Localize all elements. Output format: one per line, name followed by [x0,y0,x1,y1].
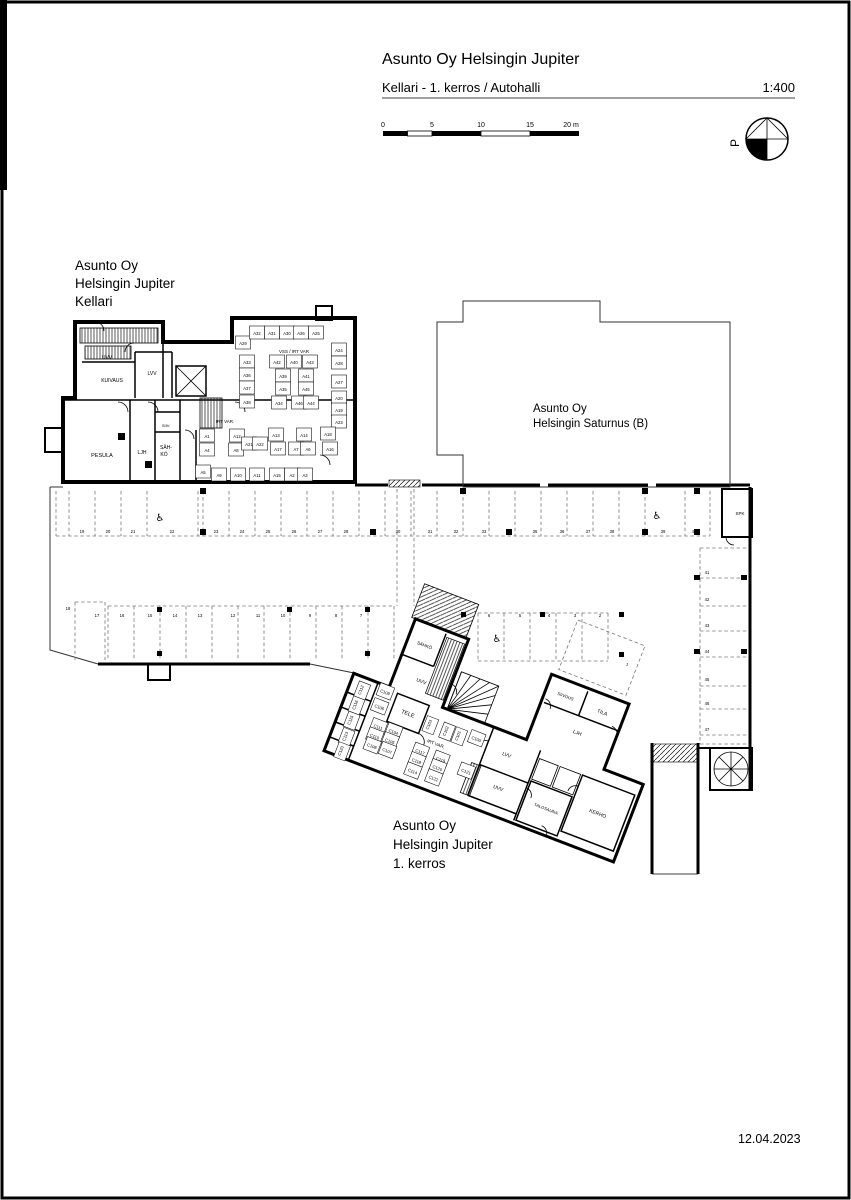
parking-stall-38: 38 [610,529,615,534]
label-a31: A31 [268,331,276,336]
label-a41: A41 [302,374,310,379]
parking-stall-2: 2 [599,613,602,618]
parking-stall-34: 34 [507,529,512,534]
parking-stall-23: 23 [214,529,219,534]
label-a5: A5 [200,470,206,475]
parking-stall-lines-row2 [75,602,394,660]
room-label-ljh-kellari: LJH [138,450,147,456]
title-block: Asunto Oy Helsingin Jupiter Kellari - 1.… [382,51,795,98]
label-a36: A36 [243,373,251,378]
kellari-label: Asunto OyHelsingin JupiterKellari [75,258,175,309]
label-a6: A6 [305,447,311,452]
parking-stall-13: 13 [198,613,203,618]
exit-ramp [652,743,710,874]
parking-stall-14: 14 [173,613,178,618]
room-label-spk: SPK [735,511,744,516]
parking-stall-4: 4 [548,613,551,618]
scale-tick-20-m: 20 m [563,122,579,129]
parking-stall-31: 31 [428,529,433,534]
room-label-sahko-1krs: SÄHKÖ [416,639,433,650]
parking-stall-11: 11 [256,613,261,618]
ramp-hatch [653,744,698,762]
kellari-west-box [45,428,63,452]
room-label-tele: TELE [400,709,415,720]
scale-bar: 05101520 m [381,122,579,136]
label-a38: A38 [243,400,251,405]
kerros1-label: Asunto OyHelsingin Jupiter1. kerros [393,818,493,871]
scale-tick-15: 15 [526,122,534,129]
binding-mark [0,0,7,190]
parking-stall-32: 32 [454,529,459,534]
drawing-sheet: Asunto Oy Helsingin Jupiter Kellari - 1.… [0,0,851,1200]
parking-stall-12: 12 [231,613,236,618]
parking-stall-45: 45 [705,677,710,682]
room-label-kuivaus: KUIVAUS [101,378,123,384]
label-a33: A33 [243,360,251,365]
parking-stall-16: 16 [120,613,125,618]
parking-stall-7: 7 [360,613,363,618]
parking-stall-10: 10 [281,613,286,618]
label-a18: A18 [324,432,332,437]
label-a23: A23 [335,420,343,425]
parking-stall-39: 39 [661,529,666,534]
scale-tick-5: 5 [430,122,434,129]
label-a3: A3 [302,473,308,478]
parking-stall-9: 9 [309,613,312,618]
parking-stall-8: 8 [335,613,338,618]
parking-stall-33: 33 [482,529,487,534]
parking-stall-18: 18 [66,606,71,611]
room-label-tila: TILA [596,708,609,718]
parking-stall-22: 22 [170,529,175,534]
label-a19: A19 [335,408,343,413]
building-labels: 1SÄHKÖUVVTELEIRT VAR.LVVUVVTALOSAUNAKERH… [331,574,661,855]
label-a13: A13 [272,433,280,438]
label-a44: A44 [307,401,315,406]
drawing-date: 12.04.2023 [738,1132,801,1146]
parking-stall-27: 27 [318,529,323,534]
spiral-staircase [710,748,752,790]
room-label-uvv-kellari: UVV [102,355,113,361]
saturnus-label: Asunto OyHelsingin Saturnus (B) [533,403,648,430]
parking-stall-41: 41 [705,570,710,575]
parking-stall-43: 43 [705,623,710,628]
parking-stall-28: 28 [344,529,349,534]
label-a46: A46 [295,401,303,406]
wheelchair-icon: ♿ [156,513,165,524]
room-label-sahko-line2: KÖ [160,451,167,458]
room-label-lvv-1krs: LVV [501,751,512,760]
elevator-cross [176,366,206,396]
label-a37: A37 [243,386,251,391]
parking-stall-24: 24 [240,529,245,534]
parking-stall-42: 42 [705,597,710,602]
parking-stall-26: 26 [292,529,297,534]
label-a39: A39 [279,374,287,379]
label-a10: A10 [234,473,242,478]
parking-garage [50,480,752,874]
parking-stall-30: 30 [396,529,401,534]
page-labels: UVVKUIVAUSLVVPESULALJHSÄH-KÖSIIV.IRT VAR… [66,258,745,871]
drawing-subtitle: Kellari - 1. kerros / Autohalli [382,80,540,95]
wheelchair-icon: ♿ [493,634,502,645]
label-a16: A16 [326,447,334,452]
parking-stall-29: 29 [370,529,375,534]
floor-plan-svg: Asunto Oy Helsingin Jupiter Kellari - 1.… [0,0,851,1200]
parking-stall-lines-east [700,548,747,744]
parking-stall-46: 46 [705,701,710,706]
parking-stall-20: 20 [106,529,111,534]
parking-stall-47: 47 [705,727,710,732]
label-a21: A21 [245,442,253,447]
room-label-vss-irtvar: VSS / IRT VAR [279,349,310,354]
scale-tick-0: 0 [381,122,385,129]
room-label-pesula: PESULA [91,453,113,459]
room-label-lvv-kellari: LVV [147,371,157,377]
saturnus-building-outline [437,301,730,487]
parking-stall-25: 25 [266,529,271,534]
label-a15: A15 [273,473,281,478]
parking-stall-37: 37 [586,529,591,534]
parking-stall-40: 40 [692,529,697,534]
parking-stall-1-box [559,620,645,695]
parking-stall-36: 36 [560,529,565,534]
north-label: P [728,139,742,147]
label-a40: A40 [290,360,298,365]
label-a1: A1 [204,434,210,439]
room-label-kerho: KERHO [588,808,607,820]
label-a32: A32 [253,331,261,336]
parking-stall-44: 44 [705,649,710,654]
driveway-lane-lines [397,489,414,606]
spk-door-arc [726,537,734,545]
label-a7: A7 [293,447,299,452]
room-label-talosauna: TALOSAUNA [533,802,558,816]
room-label-siiv: SIIV. [162,423,170,428]
compass-north-wedge [746,139,767,160]
label-a35: A35 [279,387,287,392]
label-a22: A22 [256,442,264,447]
parking-stall-19: 19 [80,529,85,534]
drying-rack-hatch [80,328,158,343]
door-tags [118,433,152,468]
north-arrow: P [728,118,788,160]
room-label-sahko-line1: SÄH- [160,444,172,451]
room-label-ljh-1krs: LJH [572,729,583,738]
label-a12: A12 [233,434,241,439]
parking-stall-35: 35 [533,529,538,534]
parking-stall-3: 3 [574,613,577,618]
garage-west-boundary [50,487,98,664]
room-label-uvv-1krs: UVV [415,677,427,687]
parking-stall-1: 1 [625,661,630,667]
scale-tick-10: 10 [477,122,485,129]
label-a4: A4 [204,448,210,453]
label-a17: A17 [274,447,282,452]
label-a25: A25 [312,331,320,336]
room-label-irtvar-kellari: IRT VAR. [216,419,235,424]
drawing-title: Asunto Oy Helsingin Jupiter [382,51,580,68]
parking-stall-17: 17 [95,613,100,618]
room-label-uvv2-1krs: UVV [492,784,504,794]
label-a26: A26 [297,331,305,336]
label-a2: A2 [289,473,295,478]
fan-staircase [447,672,499,724]
room-label-siivous: SIIVOUS [557,691,575,702]
label-a9: A9 [216,473,222,478]
label-a34: A34 [275,401,283,406]
label-a20: A20 [335,396,343,401]
parking-stall-6: 6 [488,613,491,618]
label-a24: A24 [335,348,343,353]
label-a42: A42 [273,360,281,365]
parking-stall-5: 5 [519,613,522,618]
label-a29: A29 [239,341,247,346]
label-a14: A14 [300,433,308,438]
label-a30: A30 [283,331,291,336]
label-a28: A28 [335,361,343,366]
label-a8: A8 [233,448,239,453]
parking-stall-15: 15 [148,613,153,618]
parking-stall-21: 21 [131,529,136,534]
scale-bar-ticks: 05101520 m [381,122,579,129]
label-a45: A45 [302,387,310,392]
label-a27: A27 [335,380,343,385]
south-exit-box [148,664,170,680]
label-a43: A43 [306,360,314,365]
entry-ramp-hatch [389,480,420,487]
wheelchair-icon: ♿ [653,511,662,522]
label-a11: A11 [253,473,261,478]
drawing-scale: 1:400 [762,80,795,95]
